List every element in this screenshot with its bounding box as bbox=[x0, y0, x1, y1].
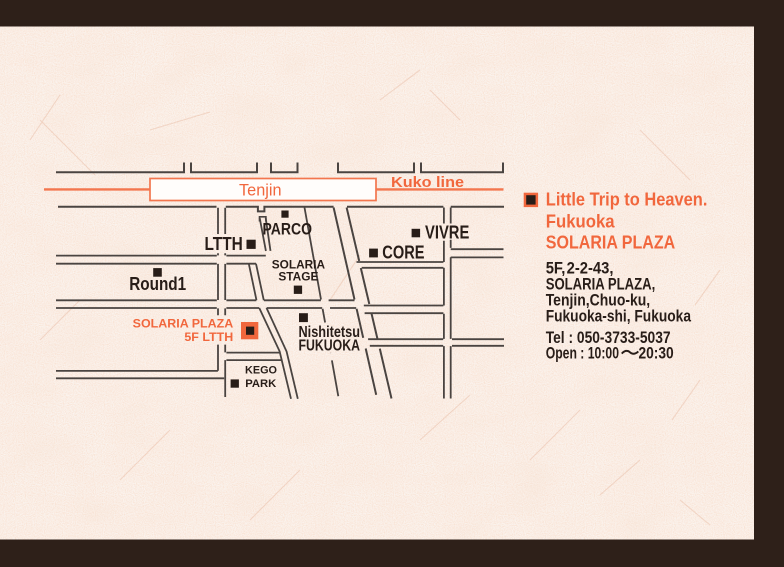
svg-text:Open : 10:00: Open : 10:00 bbox=[546, 345, 619, 363]
svg-text:PARCO: PARCO bbox=[263, 220, 313, 239]
svg-text:STAGE: STAGE bbox=[278, 269, 318, 283]
svg-text:LTTH: LTTH bbox=[205, 234, 243, 254]
svg-text:Fukuoka: Fukuoka bbox=[546, 211, 615, 232]
svg-text:Tenjin: Tenjin bbox=[239, 181, 282, 200]
svg-text:CORE: CORE bbox=[382, 242, 424, 262]
svg-text:Fukuoka-shi, Fukuoka: Fukuoka-shi, Fukuoka bbox=[546, 307, 692, 325]
svg-text:Little Trip to Heaven.: Little Trip to Heaven. bbox=[546, 189, 708, 210]
svg-text:Round1: Round1 bbox=[129, 274, 186, 294]
svg-text:PARK: PARK bbox=[245, 378, 277, 390]
svg-text:VIVRE: VIVRE bbox=[425, 222, 469, 242]
svg-text:SOLARIA PLAZA: SOLARIA PLAZA bbox=[133, 316, 234, 330]
svg-text:FUKUOKA: FUKUOKA bbox=[299, 338, 361, 355]
svg-text:5F LTTH: 5F LTTH bbox=[184, 330, 233, 344]
svg-text:SOLARIA PLAZA,: SOLARIA PLAZA, bbox=[546, 275, 656, 293]
svg-text:KEGO: KEGO bbox=[245, 365, 277, 377]
svg-text:SOLARIA PLAZA: SOLARIA PLAZA bbox=[546, 232, 675, 253]
svg-text:20:30: 20:30 bbox=[639, 345, 674, 363]
svg-text:Kuko line: Kuko line bbox=[391, 174, 464, 191]
